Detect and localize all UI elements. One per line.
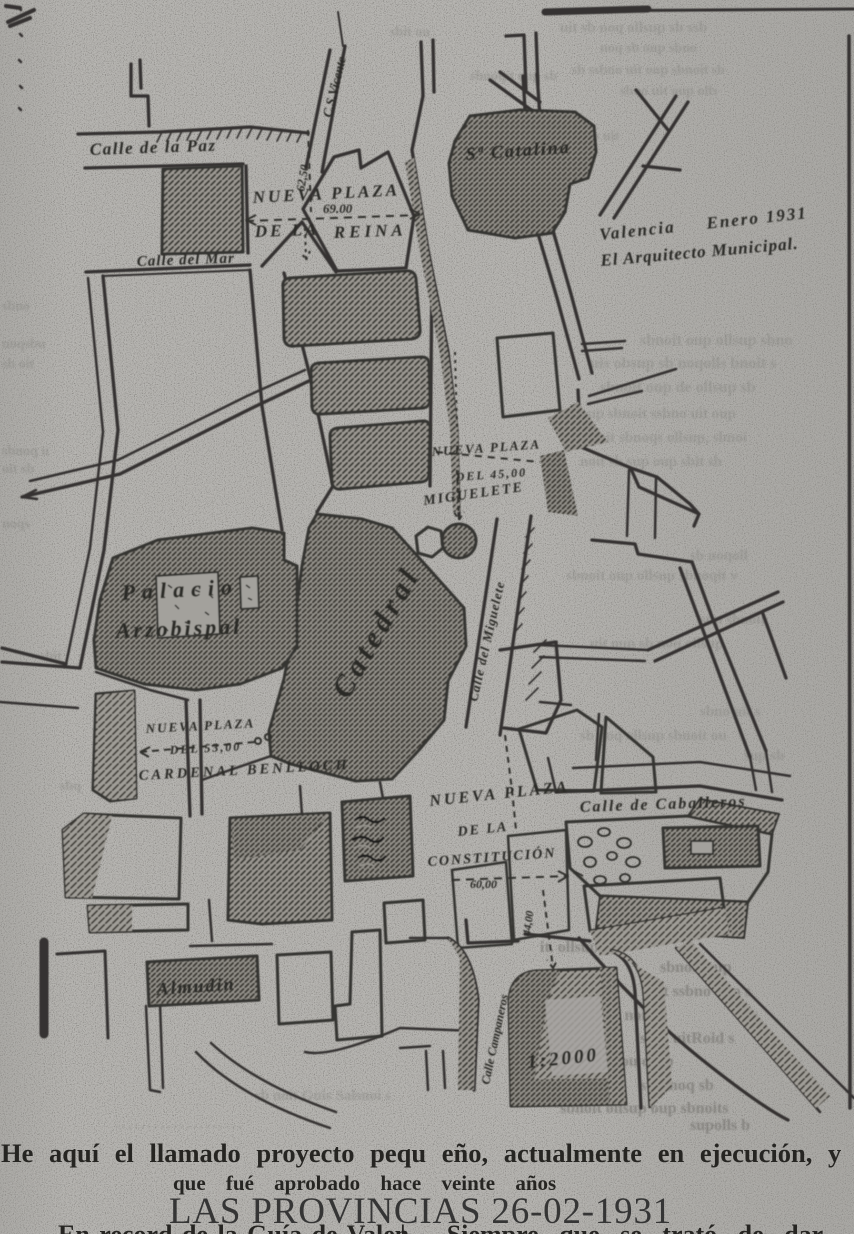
svg-text:sbnoq u: sbnoq u xyxy=(2,444,49,459)
svg-text:sbq: sbq xyxy=(60,779,81,794)
svg-text:uit sb noq ollsup sb ssb: uit sb noq ollsup sb ssb xyxy=(560,20,707,36)
svg-text:sb ssbno uit oup sbnoit sb: sb ssbno uit oup sbnoit sb xyxy=(572,63,725,78)
svg-text:sb oit: sb oit xyxy=(2,357,35,372)
svg-text:sbno: sbno xyxy=(2,299,30,314)
svg-text:69.00: 69.00 xyxy=(323,201,353,216)
svg-text:En record de la Guía de Valen: En record de la Guía de Valen xyxy=(58,1220,410,1234)
svg-text:oit sb: oit sb xyxy=(2,462,35,477)
svg-text:. . . . . . . . . . . . . . .: . . . . . . . . . . . . . . . . . . . . xyxy=(115,1116,242,1131)
svg-text:sbit ou: sbit ou xyxy=(390,25,430,40)
svg-text:sbnoit oup ollsup sbno: sbnoit oup ollsup sbno xyxy=(640,332,793,349)
svg-text:noqs: noqs xyxy=(2,517,31,532)
svg-text:oup sbnoit ssbno uit oup: oup sbnoit ssbno uit oup xyxy=(580,406,736,422)
svg-text:60,00: 60,00 xyxy=(470,877,497,891)
svg-text:uis obsup sb noqolls bnoit s: uis obsup sb noqolls bnoit s xyxy=(590,355,776,372)
svg-text:supolls b: supolls b xyxy=(690,1117,750,1134)
svg-text:noq sb oup sbno: noq sb oup sbno xyxy=(600,41,697,56)
svg-text:sbnoit oup de ollsup sb: sbnoit oup de ollsup sb xyxy=(600,379,756,396)
svg-text:| Siempre que se trató de dar: | Siempre que se trató de dar xyxy=(400,1220,823,1234)
svg-text:sbnoit oup ollsup sbnoqit v: sbnoit oup ollsup sbnoqit v xyxy=(566,568,738,584)
svg-text:sb noit Guis Salsnoi s: sb noit Guis Salsnoi s xyxy=(255,1088,391,1104)
svg-text:Arzobispal: Arzobispal xyxy=(113,614,242,643)
svg-text:sbno uit oup olls: sbno uit oup olls xyxy=(620,84,718,99)
svg-text:noqsbu: noqsbu xyxy=(2,337,46,352)
svg-text:REINA: REINA xyxy=(332,220,407,242)
svg-text:Calle del Mar: Calle del Mar xyxy=(137,251,235,270)
svg-text:sb noqoll: sb noqoll xyxy=(690,548,748,564)
svg-text:DE LA: DE LA xyxy=(253,220,319,241)
svg-text:He aquí el llamado proyecto pe: He aquí el llamado proyecto pequ eño, ac… xyxy=(1,1138,841,1168)
